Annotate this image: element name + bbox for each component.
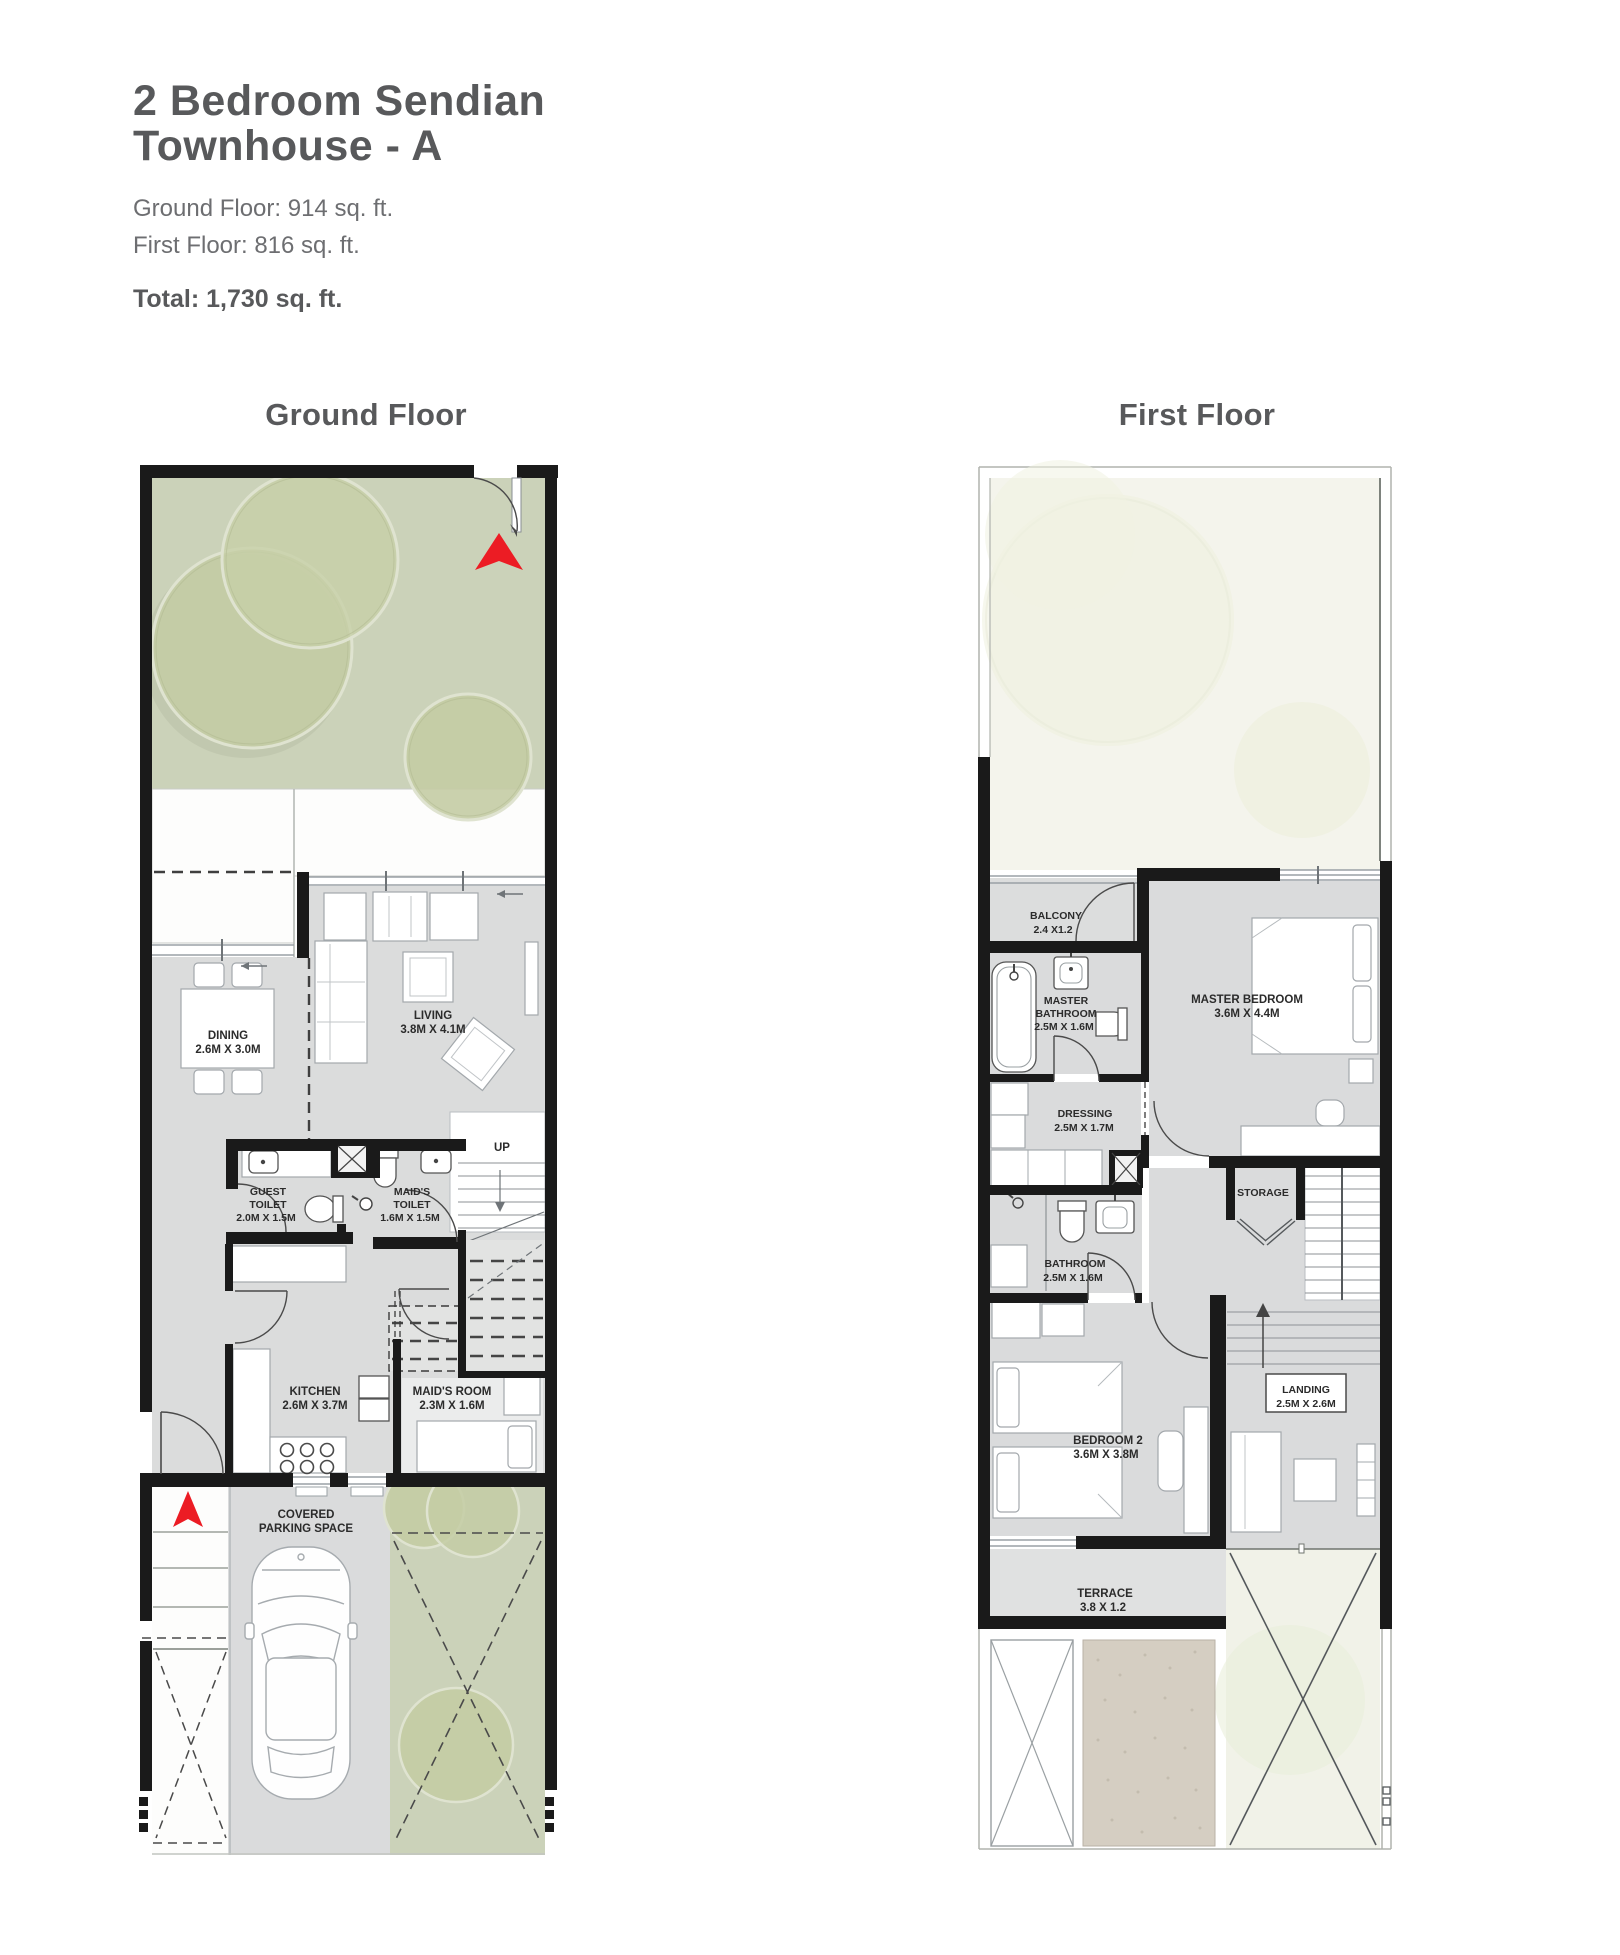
- svg-text:MASTER BEDROOM: MASTER BEDROOM: [1191, 994, 1303, 1006]
- svg-text:3.8 X 1.2: 3.8 X 1.2: [1080, 1602, 1126, 1614]
- svg-text:LIVING: LIVING: [414, 1010, 452, 1022]
- svg-text:DRESSING: DRESSING: [1058, 1108, 1113, 1120]
- svg-text:TOILET: TOILET: [393, 1199, 431, 1211]
- svg-text:UP: UP: [494, 1142, 510, 1154]
- svg-text:First Floor: 816 sq. ft.: First Floor: 816 sq. ft.: [133, 232, 360, 259]
- svg-text:DINING: DINING: [208, 1030, 248, 1042]
- svg-text:2.6M X 3.7M: 2.6M X 3.7M: [282, 1400, 347, 1412]
- svg-text:2 Bedroom Sendian: 2 Bedroom Sendian: [133, 77, 545, 125]
- svg-text:KITCHEN: KITCHEN: [289, 1386, 340, 1398]
- svg-text:2.3M X 1.6M: 2.3M X 1.6M: [419, 1400, 484, 1412]
- svg-text:2.0M X 1.5M: 2.0M X 1.5M: [236, 1212, 296, 1224]
- svg-text:TERRACE: TERRACE: [1077, 1588, 1133, 1600]
- svg-text:BATHROOM: BATHROOM: [1035, 1008, 1096, 1020]
- svg-text:PARKING SPACE: PARKING SPACE: [259, 1523, 353, 1535]
- svg-text:3.6M X 4.4M: 3.6M X 4.4M: [1214, 1008, 1279, 1020]
- svg-text:First Floor: First Floor: [1119, 397, 1276, 432]
- svg-text:Townhouse - A: Townhouse - A: [133, 122, 443, 170]
- svg-text:2.5M X 1.6M: 2.5M X 1.6M: [1034, 1021, 1094, 1033]
- svg-text:2.5M X 2.6M: 2.5M X 2.6M: [1276, 1398, 1336, 1410]
- svg-text:Total: 1,730 sq. ft.: Total: 1,730 sq. ft.: [133, 285, 342, 313]
- svg-text:MAID'S ROOM: MAID'S ROOM: [413, 1386, 492, 1398]
- svg-text:MASTER: MASTER: [1044, 995, 1089, 1007]
- svg-text:BATHROOM: BATHROOM: [1044, 1258, 1105, 1270]
- svg-text:STORAGE: STORAGE: [1237, 1187, 1289, 1199]
- svg-text:GUEST: GUEST: [250, 1186, 287, 1198]
- svg-text:2.6M X 3.0M: 2.6M X 3.0M: [195, 1044, 260, 1056]
- svg-text:2.5M X 1.7M: 2.5M X 1.7M: [1054, 1122, 1114, 1134]
- svg-text:2.4 X1.2: 2.4 X1.2: [1033, 924, 1072, 936]
- svg-text:LANDING: LANDING: [1282, 1384, 1330, 1396]
- svg-text:3.8M X 4.1M: 3.8M X 4.1M: [400, 1024, 465, 1036]
- svg-text:MAID'S: MAID'S: [394, 1186, 430, 1198]
- svg-text:Ground Floor: Ground Floor: [265, 397, 467, 432]
- svg-text:3.6M X 3.8M: 3.6M X 3.8M: [1073, 1449, 1138, 1461]
- svg-text:2.5M X 1.6M: 2.5M X 1.6M: [1043, 1272, 1103, 1284]
- svg-text:BALCONY: BALCONY: [1030, 910, 1082, 922]
- svg-text:TOILET: TOILET: [249, 1199, 287, 1211]
- svg-text:1.6M X 1.5M: 1.6M X 1.5M: [380, 1212, 440, 1224]
- svg-text:COVERED: COVERED: [278, 1509, 335, 1521]
- svg-text:Ground Floor: 914 sq. ft.: Ground Floor: 914 sq. ft.: [133, 195, 393, 222]
- svg-text:BEDROOM 2: BEDROOM 2: [1073, 1435, 1143, 1447]
